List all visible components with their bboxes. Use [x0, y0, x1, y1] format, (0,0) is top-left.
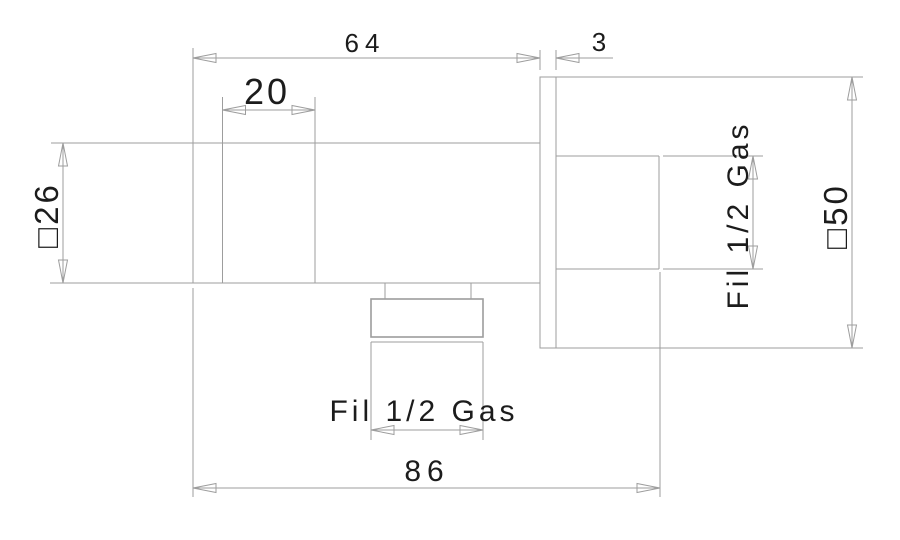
dim-26-label: □26 [28, 182, 65, 248]
dim-26-extension-lines [50, 143, 193, 283]
dim-50-label: □50 [817, 183, 854, 249]
drawing-svg: 64 3 20 □26 □5 [0, 0, 900, 540]
technical-drawing-canvas: 64 3 20 □26 □5 [0, 0, 900, 540]
neck-lines [385, 283, 471, 299]
dim-side-thread-label: Fil 1/2 Gas [722, 120, 755, 309]
dim-bottom-thread: Fil 1/2 Gas [329, 395, 518, 435]
flange-plate-outline [540, 77, 556, 348]
dim-3: 3 [540, 27, 613, 70]
dim-26: □26 [28, 143, 193, 283]
nut-outline [371, 299, 483, 337]
dim-20: 20 [223, 71, 316, 115]
flange-plate [540, 77, 556, 348]
rear-block [556, 156, 659, 269]
collar-lines [223, 97, 316, 283]
dim-86-label: 86 [404, 455, 449, 488]
dim-86: 86 [193, 272, 660, 497]
dim-bottom-thread-label: Fil 1/2 Gas [329, 395, 518, 428]
dim-20-label: 20 [244, 71, 290, 112]
nut-rect [371, 299, 483, 337]
dim-64: 64 [193, 28, 540, 63]
dim-3-label: 3 [592, 27, 612, 57]
dim-50: □50 [556, 77, 863, 348]
dim-3-extension-lines [540, 50, 556, 70]
dim-side-thread: Fil 1/2 Gas [663, 120, 763, 309]
body-outline [193, 48, 540, 497]
dim-64-label: 64 [345, 28, 386, 58]
